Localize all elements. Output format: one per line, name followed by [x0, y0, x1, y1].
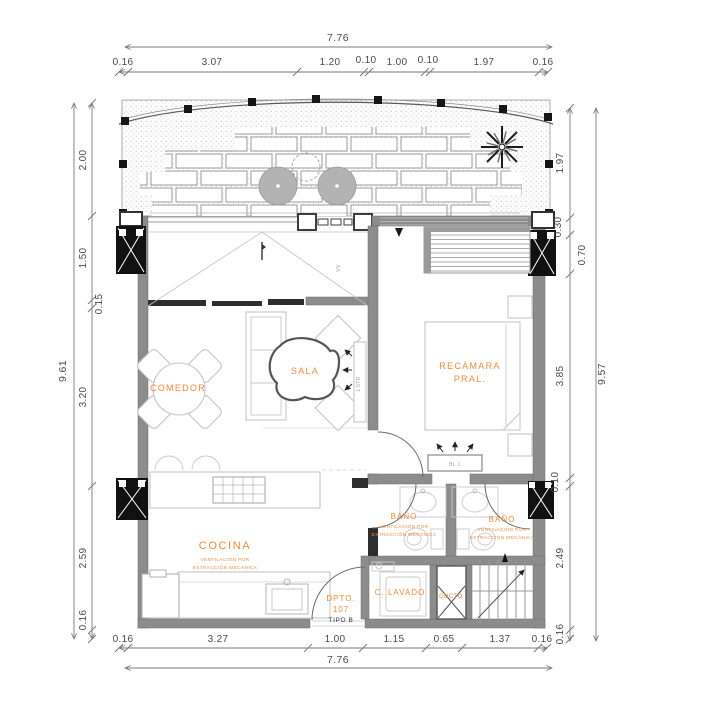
dim-label: 0.10: [550, 472, 561, 493]
dim-label: 1.15: [384, 634, 405, 645]
dim-label: 1.97: [555, 153, 566, 174]
vent-note: VENTILACIÓN POR: [201, 556, 250, 563]
room-label-cocina: COCINA: [199, 540, 251, 552]
vent-note: EXTRACCIÓN MECÁNICA: [193, 564, 258, 571]
dim-label: 3.27: [208, 634, 229, 645]
nightstand: [508, 434, 532, 456]
closet: [424, 227, 530, 273]
dim-label: 2.00: [78, 150, 89, 171]
dim-label: 2.59: [78, 548, 89, 569]
room-label-bano-left: BAÑO: [391, 512, 418, 521]
dim-label: 0.16: [78, 610, 89, 631]
vent-note: VENTILACIÓN POR: [478, 526, 527, 533]
dim-label: 1.20: [320, 57, 341, 68]
dim-label: 2.49: [555, 548, 566, 569]
vent-note: EXTRACCIÓN MECÁNICA: [470, 534, 535, 541]
terrace: [119, 95, 553, 217]
dim-label: 1.50: [78, 248, 89, 269]
window-note: VV: [336, 264, 342, 272]
unit-label-dpto: DPTO.: [326, 594, 355, 603]
plant-icon: [481, 126, 523, 168]
dim-label: 1.00: [387, 57, 408, 68]
dim-label: 0.15: [94, 294, 105, 315]
dim-label: 3.07: [202, 57, 223, 68]
duct-shaft: [437, 566, 466, 619]
bedroom-set: [424, 227, 532, 456]
dim-label: 1.37: [490, 634, 511, 645]
room-label-sala: SALA: [291, 366, 319, 376]
dim-label: 9.61: [57, 360, 69, 382]
dim-label: 0.16: [113, 57, 134, 68]
room-label-comedor: COMEDOR: [150, 383, 206, 393]
stove: [213, 477, 265, 503]
dim-label: 0.16: [113, 634, 134, 645]
dim-label: 0.30: [553, 217, 564, 238]
floor-plan-sheet: 7.76 0.16 3.07 1.20 0.10 1.00 0.10 1.97 …: [0, 0, 720, 720]
column-icon: [528, 212, 556, 276]
vent-note: EXTRACCIÓN MECÁNICA: [372, 531, 437, 538]
kitchen-sink: [266, 579, 308, 614]
boiler-note: BL 1: [449, 462, 461, 468]
floor-plan-drawing: 7.76 0.16 3.07 1.20 0.10 1.00 0.10 1.97 …: [0, 0, 720, 720]
column-icon: [116, 212, 146, 274]
dim-label: 0.65: [434, 634, 455, 645]
fridge: [142, 570, 179, 618]
dim-label: 9.57: [596, 363, 608, 385]
room-label-recamara: RECÁMARA: [439, 361, 500, 371]
dim-label: 0.70: [577, 245, 588, 266]
vent-note: VENTILACIÓN POR: [380, 523, 429, 530]
room-label-ducto: DUCTO: [439, 594, 463, 600]
dim-label: 7.76: [327, 654, 349, 666]
tv-size-note: 1.5TR: [356, 376, 362, 392]
dim-label: 3.85: [555, 366, 566, 387]
room-label-lavado: C. LAVADO: [375, 588, 426, 597]
dim-label: 1.97: [474, 57, 495, 68]
dim-label: 7.76: [327, 32, 349, 44]
dim-label: 0.10: [356, 55, 377, 66]
dim-label: 0.16: [555, 624, 566, 645]
column-icon: [116, 478, 148, 520]
unit-label-tipo: TIPO B: [329, 617, 354, 624]
dim-label: 0.16: [533, 57, 554, 68]
dim-label: 1.00: [325, 634, 346, 645]
dim-label: 0.10: [418, 55, 439, 66]
room-label-bano-right: BAÑO: [489, 515, 516, 524]
dim-label: 0.16: [532, 634, 553, 645]
unit-label-number: 107: [333, 605, 349, 614]
room-label-recamara-2: PRAL.: [454, 374, 487, 384]
nightstand: [508, 296, 532, 318]
dim-label: 3.20: [78, 387, 89, 408]
